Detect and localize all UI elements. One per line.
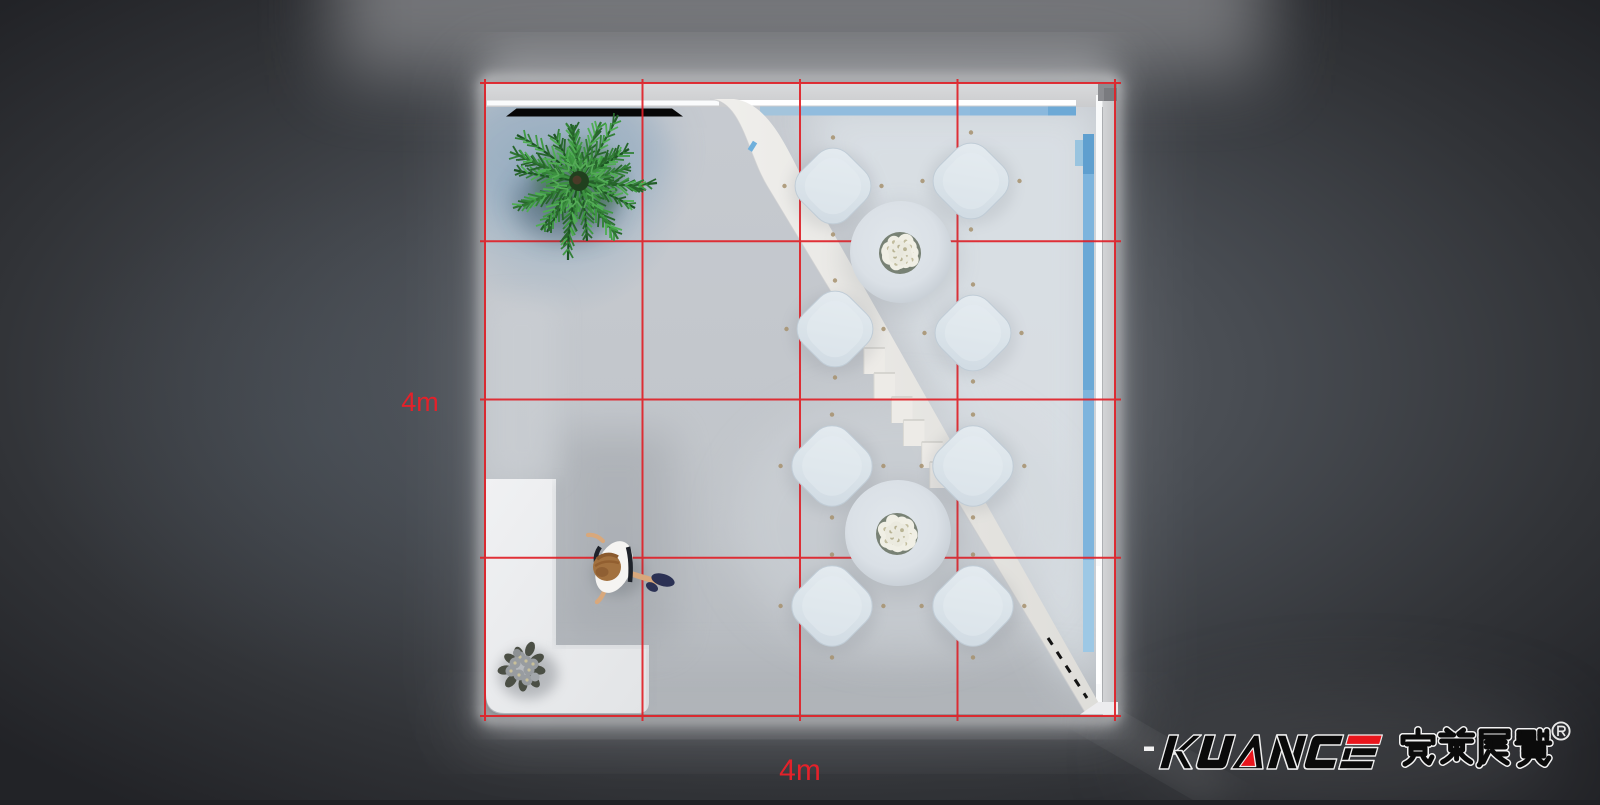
svg-text:4m: 4m	[779, 754, 821, 787]
svg-text:4m: 4m	[401, 387, 439, 417]
